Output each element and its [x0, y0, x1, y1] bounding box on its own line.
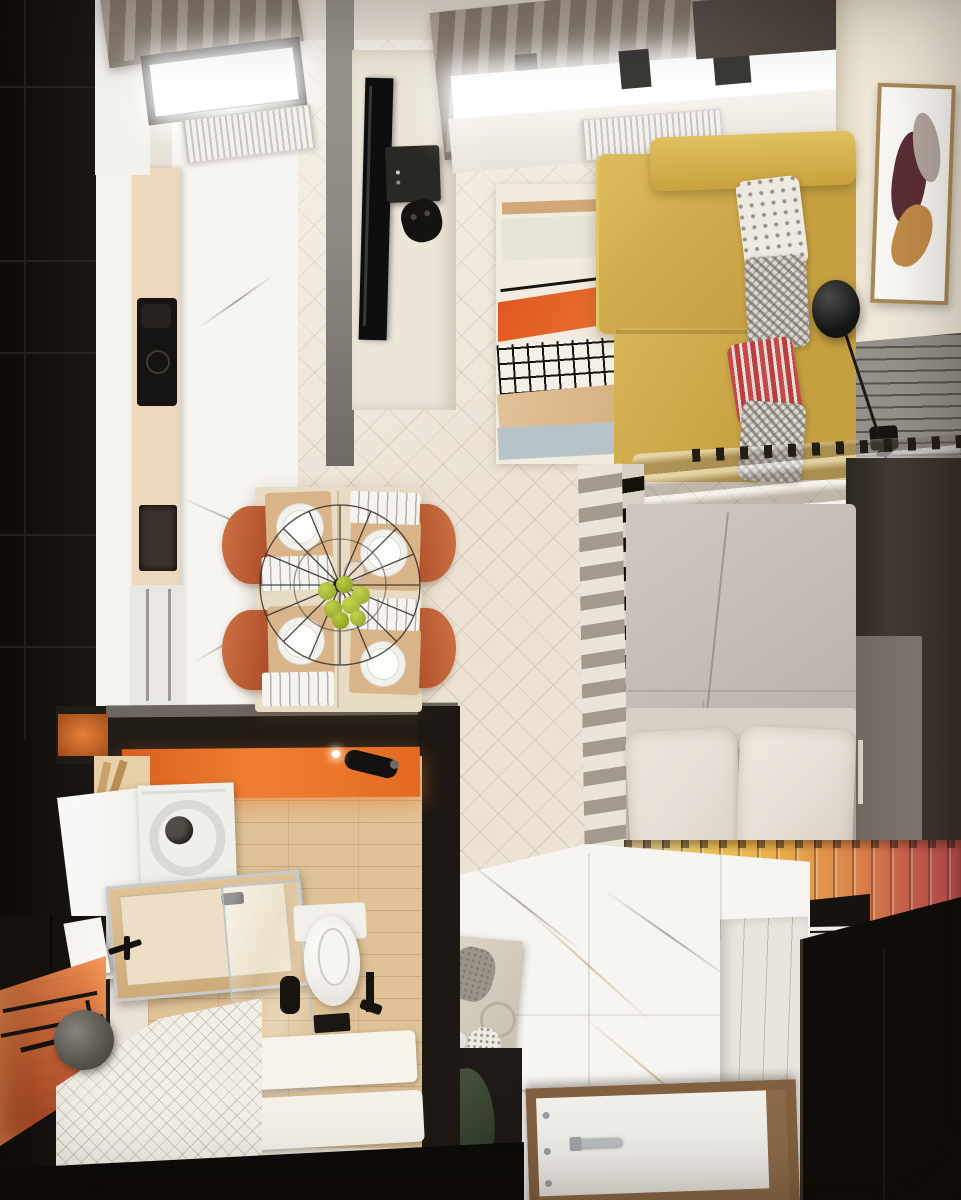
marble-vein	[200, 274, 275, 327]
shower-mat	[252, 1090, 424, 1151]
hall-closet	[800, 890, 961, 1200]
gamepad-stick	[424, 210, 431, 217]
shelf-line	[0, 260, 108, 262]
floor-lamp-sphere	[812, 280, 860, 338]
console-button	[396, 170, 400, 174]
game-console	[385, 145, 441, 203]
gamepad-stick	[410, 213, 417, 220]
wall-art-frame	[870, 83, 956, 306]
sofa-pillow-houndstooth	[744, 254, 811, 349]
console-button	[396, 180, 400, 184]
apple	[332, 612, 349, 629]
entry-door	[526, 1079, 801, 1200]
shelf-line	[0, 646, 108, 648]
apple	[350, 610, 366, 626]
sofa-seam	[616, 330, 764, 334]
pan	[141, 304, 171, 328]
wall-faucet-riser	[124, 936, 130, 960]
kitchen-sink	[139, 505, 177, 571]
wardrobe-handle	[858, 740, 863, 804]
door-hinge	[545, 1180, 552, 1187]
window-mullion	[618, 49, 651, 89]
appliance-front	[130, 585, 184, 707]
marble-vein	[602, 888, 734, 981]
blanket-scallop-edge	[624, 840, 961, 848]
toilet-bowl-inner	[316, 927, 351, 987]
shelf-line	[0, 352, 108, 354]
cooktop-ring	[146, 350, 170, 374]
shelf-line	[0, 534, 108, 536]
door-handle	[575, 1137, 621, 1148]
shower-mat	[247, 1030, 417, 1091]
apple	[336, 576, 353, 593]
shelf-edge	[24, 0, 26, 740]
apple	[318, 582, 336, 600]
shower-head	[54, 1010, 114, 1070]
ceiling-light-dot	[332, 750, 340, 758]
orange-niche-glow	[58, 714, 108, 756]
tv-glare	[363, 86, 372, 326]
duvet-seam	[628, 690, 856, 692]
apple-bowl	[316, 576, 372, 630]
cutlery-tray	[262, 671, 335, 706]
shower-mats	[245, 1023, 429, 1156]
shelf-line	[0, 86, 108, 88]
spotlight-lens	[390, 760, 399, 769]
toilet-brush	[280, 976, 300, 1014]
cooktop	[137, 298, 177, 406]
door-hinge	[544, 1148, 551, 1155]
tv-partition-pillar	[326, 0, 354, 466]
door-leaf	[536, 1090, 769, 1196]
appliance-handle	[146, 589, 149, 701]
door-hinge	[543, 1112, 550, 1119]
closet-seam	[883, 950, 885, 1200]
appliance-handle	[168, 589, 171, 701]
door-handle-stem	[569, 1137, 581, 1151]
washer-seam	[142, 789, 226, 795]
apartment-top-view-render: Top-down 3D render of a compact studio a…	[0, 0, 961, 1200]
